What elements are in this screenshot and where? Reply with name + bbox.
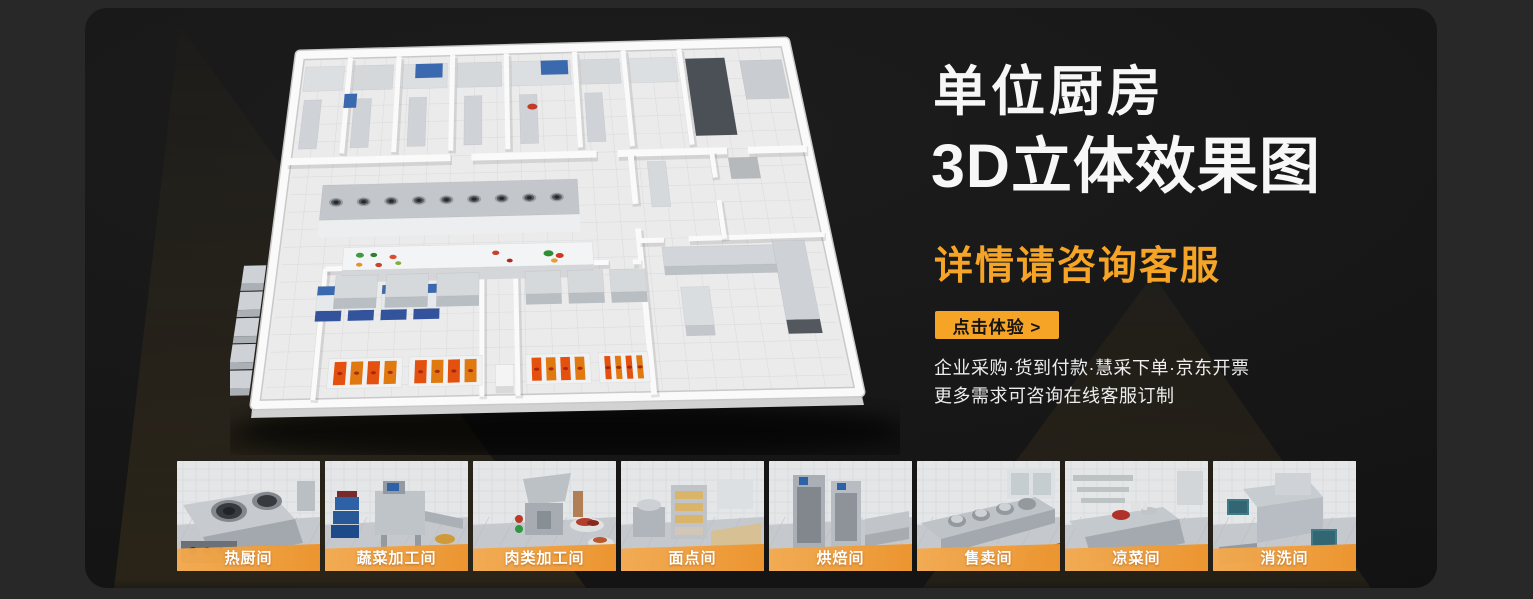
hero-subtitle: 详情请咨询客服	[934, 246, 1221, 289]
promo-banner: 单位厨房 3D立体效果图 详情请咨询客服 点击体验 > 企业采购·货到付款·慧采…	[85, 8, 1437, 588]
gallery-item-label: 蔬菜加工间	[356, 547, 436, 571]
hero-title-line1: 单位厨房	[933, 64, 1165, 121]
note-line-2: 更多需求可咨询在线客服订制	[934, 382, 1175, 408]
gallery-item-label: 凉菜间	[1112, 547, 1160, 571]
gallery-item-label-band: 售卖间	[917, 544, 1060, 571]
gallery-item-label-band: 烘焙间	[769, 544, 912, 571]
gallery-item[interactable]: 凉菜间	[1065, 461, 1208, 571]
gallery-item-label-band: 凉菜间	[1065, 544, 1208, 571]
gallery-item[interactable]: 烘焙间	[769, 461, 912, 571]
gallery-item-label-band: 消洗间	[1213, 544, 1356, 571]
gallery-item-label: 热厨间	[224, 547, 272, 571]
kitchen-3d-floorplan	[230, 30, 900, 455]
gallery-item-label: 烘焙间	[816, 547, 864, 571]
hero-title-line2: 3D立体效果图	[931, 134, 1321, 198]
gallery-item-label-band: 蔬菜加工间	[325, 544, 468, 571]
cta-button[interactable]: 点击体验 >	[935, 311, 1059, 339]
gallery-item-label: 售卖间	[964, 547, 1012, 571]
gallery-item-label: 肉类加工间	[504, 547, 584, 571]
gallery-item[interactable]: 蔬菜加工间	[325, 461, 468, 571]
gallery-item-label: 消洗间	[1260, 547, 1308, 571]
gallery-item[interactable]: 面点间	[621, 461, 764, 571]
gallery-item-label-band: 面点间	[621, 544, 764, 571]
gallery-item[interactable]: 消洗间	[1213, 461, 1356, 571]
gallery-item[interactable]: 售卖间	[917, 461, 1060, 571]
gallery-item[interactable]: 肉类加工间	[473, 461, 616, 571]
note-line-1: 企业采购·货到付款·慧采下单·京东开票	[934, 354, 1249, 380]
gallery: 热厨间蔬菜加工间肉类加工间面点间烘焙间售卖间凉菜间消洗间	[177, 461, 1356, 571]
gallery-item[interactable]: 热厨间	[177, 461, 320, 571]
gallery-item-label-band: 热厨间	[177, 544, 320, 571]
kitchen-3d-floorplan-illustration	[230, 30, 900, 455]
gallery-item-label-band: 肉类加工间	[473, 544, 616, 571]
gallery-item-label: 面点间	[668, 547, 716, 571]
